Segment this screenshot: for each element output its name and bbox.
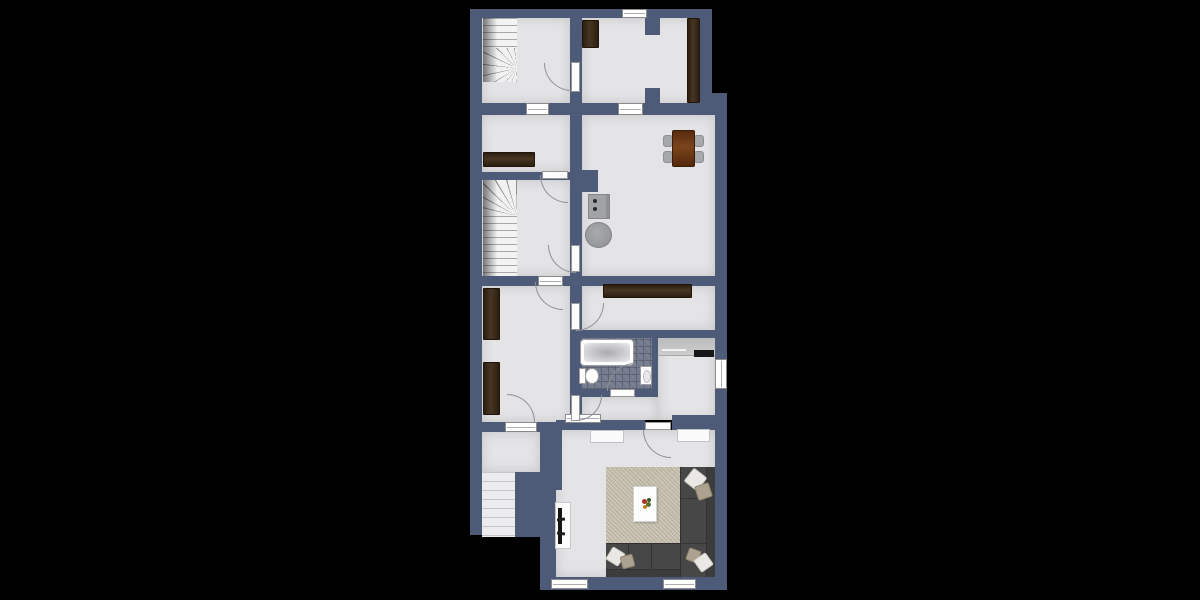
dining-chair (694, 135, 704, 147)
flower-decor (647, 498, 651, 502)
stove (588, 194, 610, 219)
window-hall-interior (526, 103, 549, 115)
main-staircase (483, 180, 517, 276)
stair-shading (483, 180, 517, 276)
entry-stairs (482, 472, 515, 537)
sideboard-sitting-room (483, 152, 535, 167)
bathtub-basin (584, 343, 630, 362)
floor-plan (0, 0, 1200, 600)
wall-top (470, 9, 712, 18)
round-side-table (585, 222, 612, 248)
wardrobe-small-bedroom-upper (582, 20, 599, 48)
wash-basin (640, 366, 652, 385)
stair-shading (483, 18, 517, 82)
bathtub (580, 339, 634, 366)
toilet-bowl (585, 368, 599, 384)
window-living-bottom-right (663, 579, 696, 589)
burner-dot (593, 207, 597, 211)
wall-chimney-top (645, 18, 660, 35)
sideboard-living-left (590, 430, 624, 443)
wall-storage-bottom (570, 330, 716, 338)
window-top-exterior (622, 9, 647, 18)
sideboard-storage-room (603, 284, 692, 298)
wall-chimney-kitchen (582, 170, 598, 192)
flower-decor (643, 505, 647, 509)
dark-appliance (694, 350, 714, 357)
burner-dot (593, 199, 597, 203)
wall-stair-block (515, 472, 540, 537)
tv (558, 508, 562, 544)
window-kitchen-interior (618, 103, 643, 115)
wall-horizontal-upper (470, 103, 716, 115)
wardrobe-tall-bedroom-upper (687, 18, 700, 103)
window-study-exterior (715, 359, 727, 389)
sideboard-living-right (677, 429, 710, 442)
wall-right-upper (700, 9, 712, 115)
basin-bowl (643, 370, 651, 383)
counter-strip (661, 348, 687, 352)
door-living-room (645, 422, 671, 430)
sofa-seam (680, 543, 706, 544)
winder-staircase-upper (483, 18, 517, 82)
dining-table (672, 130, 695, 167)
coffee-table (633, 486, 657, 522)
sofa-back-bottom (606, 569, 680, 577)
door-hall-to-bedroom-upper (571, 62, 580, 92)
wall-right-main (715, 103, 727, 590)
room-bedroom-upper-right (582, 18, 700, 103)
dining-chair (694, 151, 704, 163)
wall-study-bottom (672, 415, 716, 430)
sofa-seam (651, 543, 652, 569)
window-living-bottom-left (551, 579, 588, 589)
wardrobe-bedroom-middle-lower (483, 362, 500, 415)
wall-left (470, 9, 482, 535)
wall-chimney-bottom (645, 88, 660, 103)
floor-plan-canvas (0, 0, 1200, 600)
wall-living-left (540, 422, 556, 590)
opening-landing (505, 422, 537, 432)
wardrobe-bedroom-middle-upper (483, 288, 500, 340)
room-entry-landing (482, 432, 540, 472)
